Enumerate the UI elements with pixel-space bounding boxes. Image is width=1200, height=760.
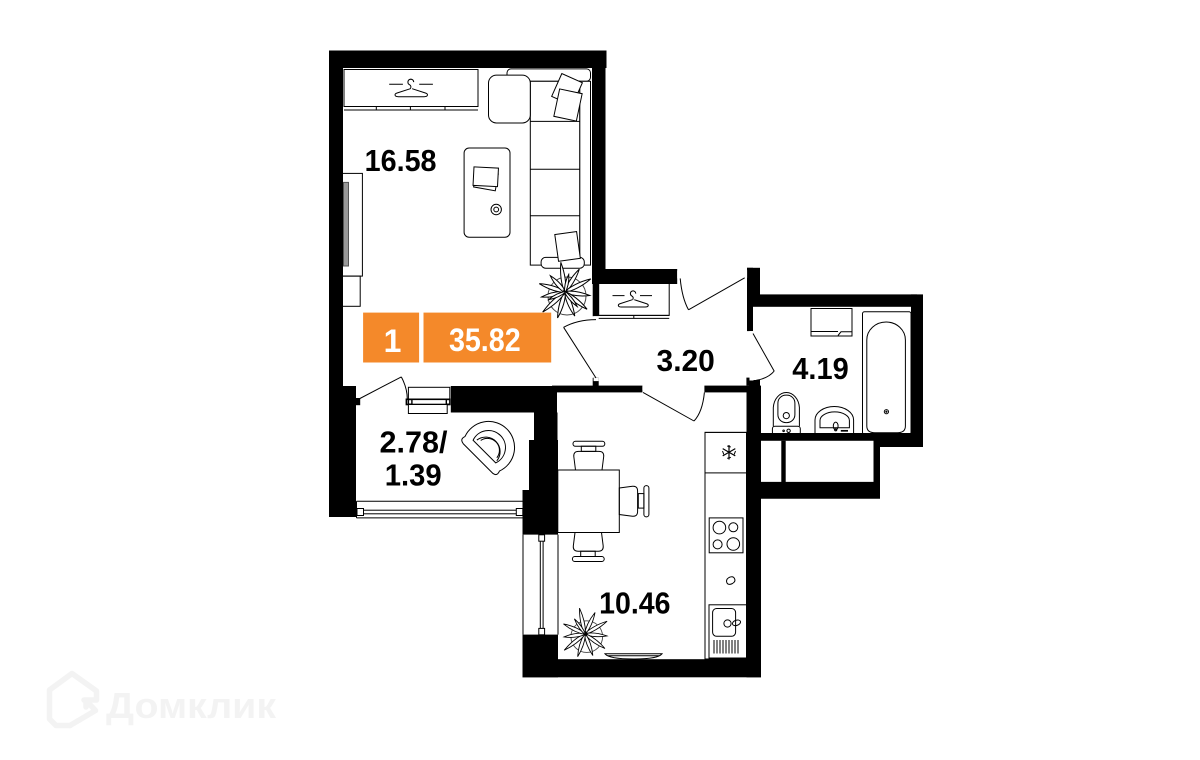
svg-text:35.82: 35.82 — [449, 322, 521, 358]
svg-text:1.39: 1.39 — [385, 457, 442, 492]
svg-text:1: 1 — [384, 323, 402, 359]
svg-text:Домклик: Домклик — [106, 685, 277, 726]
svg-text:4.19: 4.19 — [792, 351, 848, 386]
svg-text:16.58: 16.58 — [365, 143, 437, 178]
svg-text:10.46: 10.46 — [599, 585, 670, 620]
svg-text:3.20: 3.20 — [657, 343, 715, 378]
svg-text:2.78/: 2.78/ — [380, 425, 448, 460]
